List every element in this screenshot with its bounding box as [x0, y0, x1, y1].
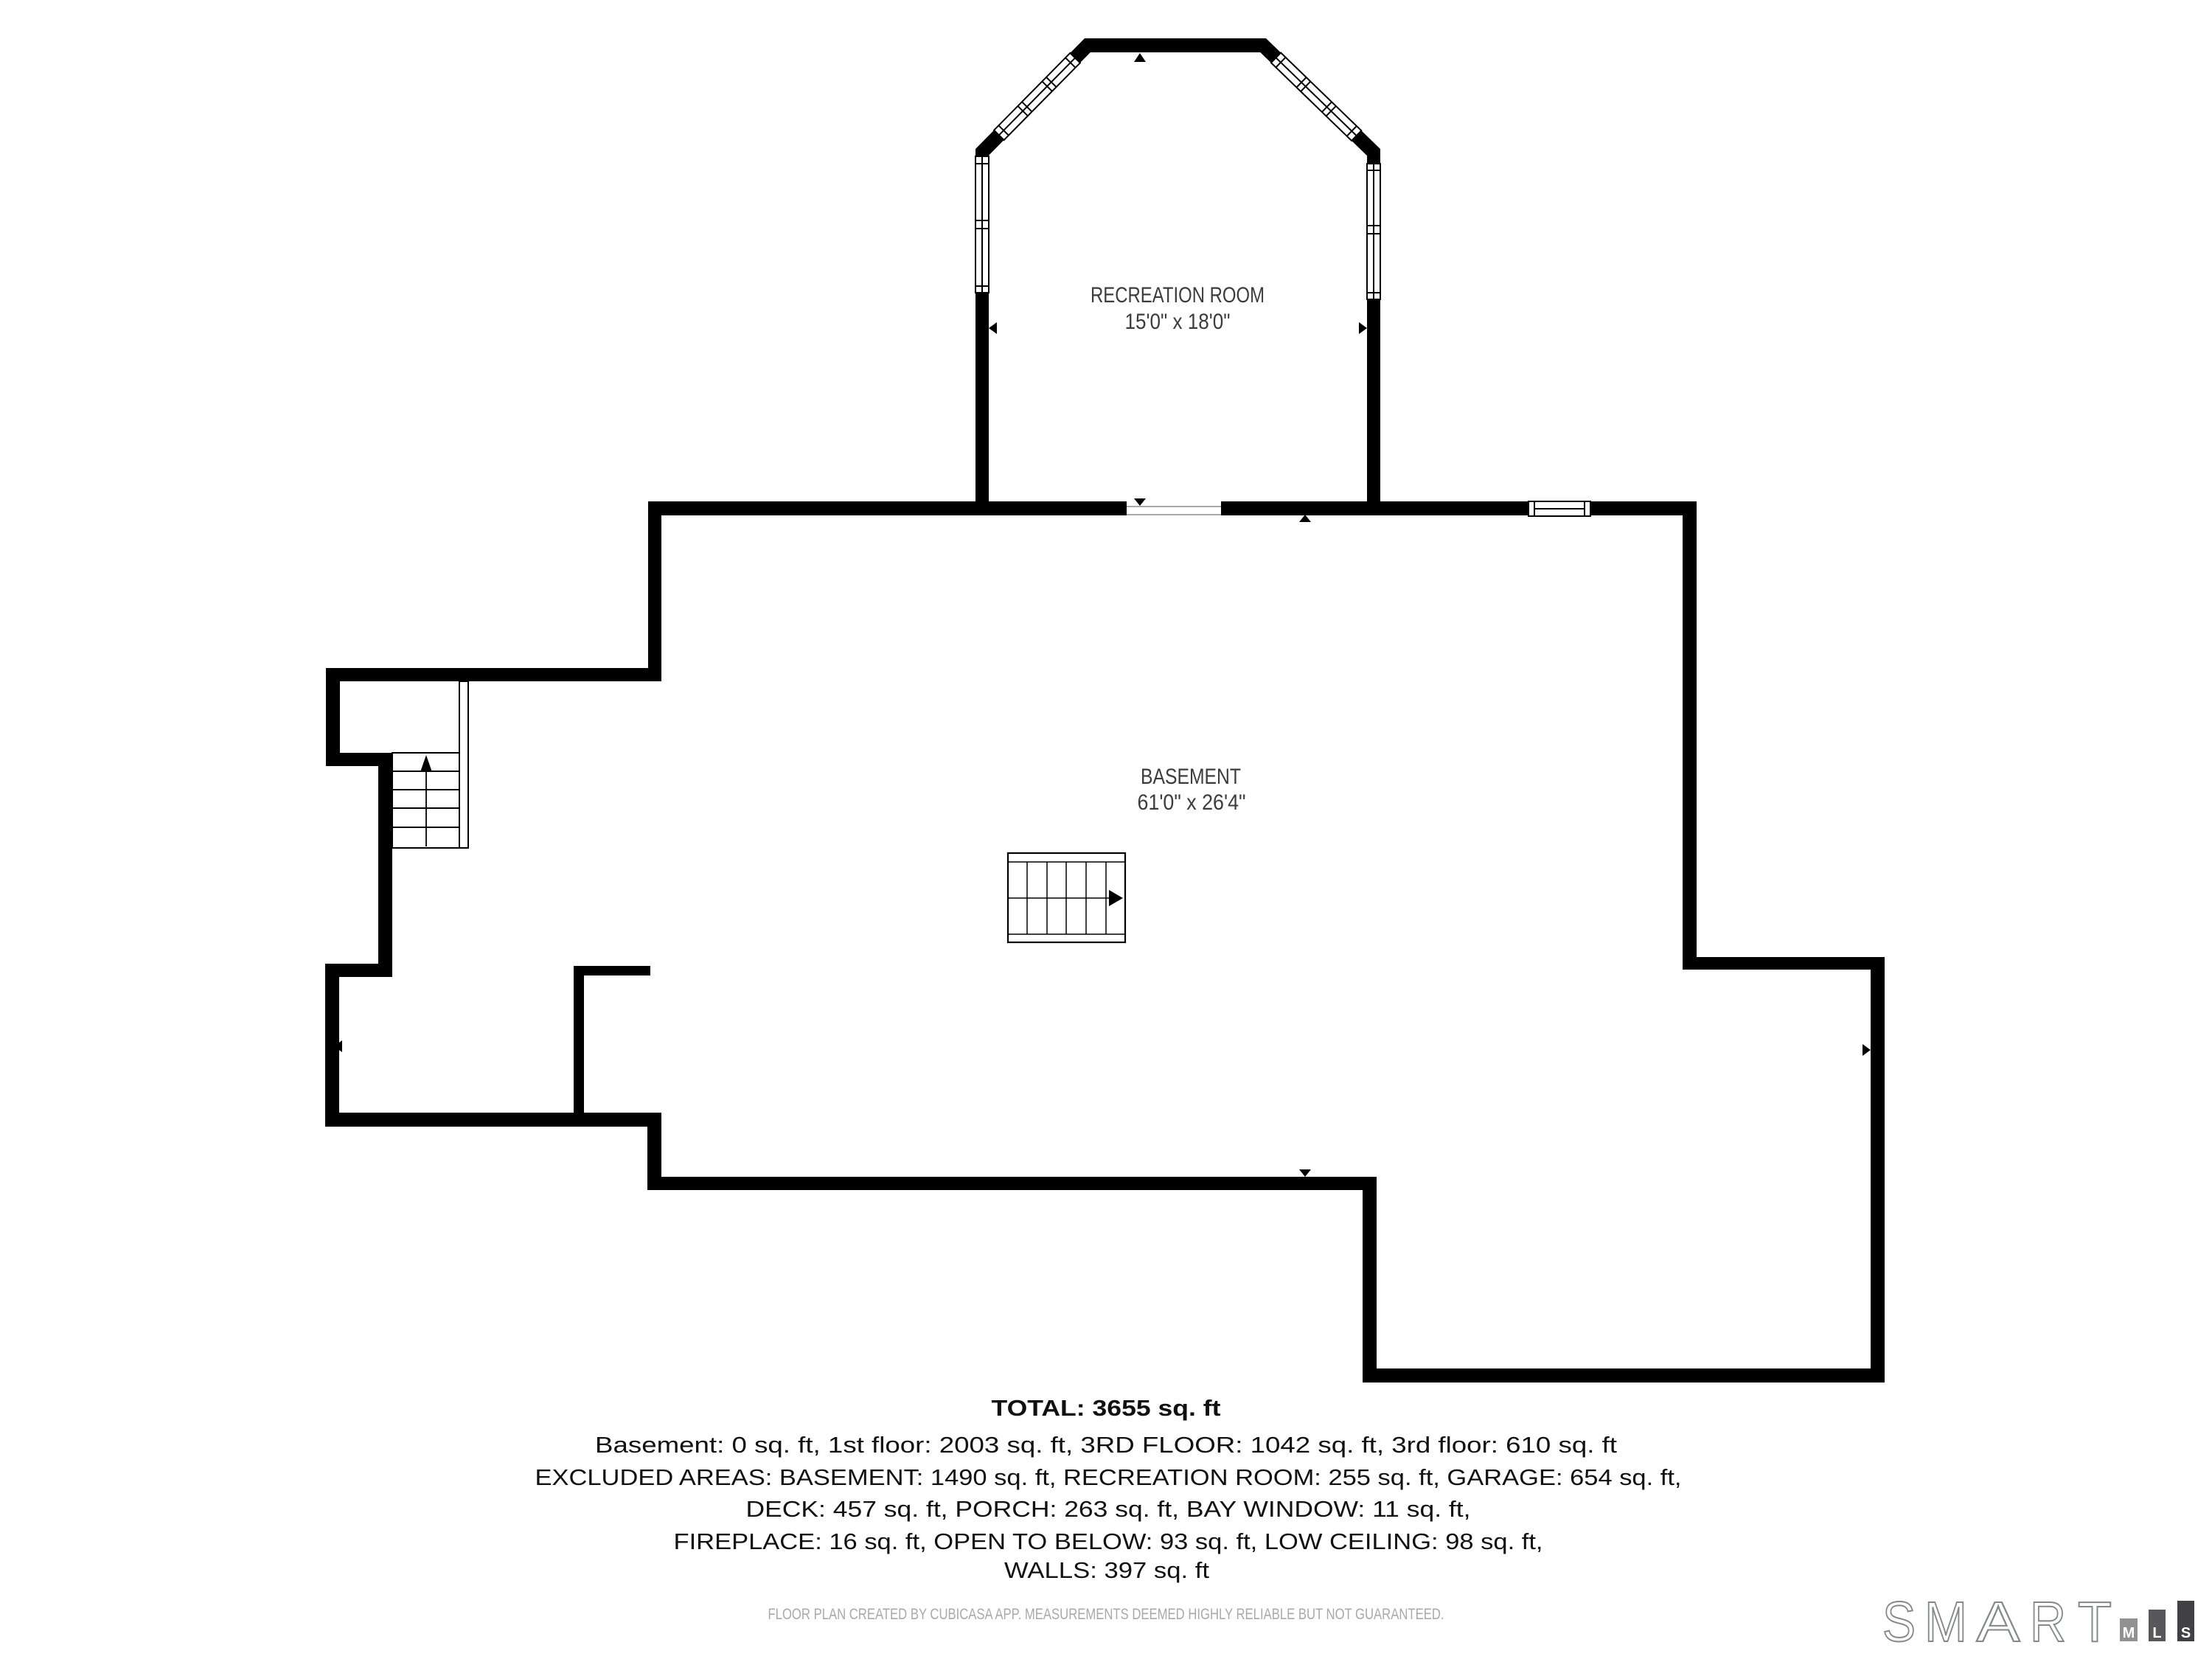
svg-text:FLOOR PLAN CREATED BY CUBICASA: FLOOR PLAN CREATED BY CUBICASA APP. MEAS… — [768, 1606, 1444, 1623]
svg-text:M: M — [1924, 1590, 1967, 1654]
svg-text:DECK: 457 sq. ft, PORCH: 263 s: DECK: 457 sq. ft, PORCH: 263 sq. ft, BAY… — [746, 1496, 1471, 1522]
svg-text:TOTAL: 3655 sq. ft: TOTAL: 3655 sq. ft — [992, 1395, 1221, 1421]
svg-text:S: S — [1882, 1590, 1916, 1654]
svg-text:T: T — [2078, 1590, 2112, 1654]
svg-text:15'0" x 18'0": 15'0" x 18'0" — [1125, 310, 1231, 334]
svg-text:RECREATION ROOM: RECREATION ROOM — [1091, 283, 1265, 307]
svg-text:L: L — [2152, 1625, 2161, 1641]
svg-text:EXCLUDED AREAS: BASEMENT: 1490: EXCLUDED AREAS: BASEMENT: 1490 sq. ft, R… — [535, 1464, 1682, 1490]
svg-text:WALLS: 397 sq. ft: WALLS: 397 sq. ft — [1004, 1557, 1209, 1583]
svg-text:61'0" x 26'4": 61'0" x 26'4" — [1138, 790, 1246, 815]
svg-text:FIREPLACE: 16 sq. ft, OPEN TO: FIREPLACE: 16 sq. ft, OPEN TO BELOW: 93 … — [674, 1528, 1543, 1554]
svg-text:A: A — [1977, 1590, 2021, 1654]
svg-text:Basement: 0 sq. ft, 1st floor:: Basement: 0 sq. ft, 1st floor: 2003 sq. … — [595, 1432, 1617, 1458]
svg-text:M: M — [2123, 1625, 2135, 1641]
svg-text:S: S — [2181, 1625, 2191, 1641]
svg-text:BASEMENT: BASEMENT — [1141, 765, 1241, 789]
svg-text:R: R — [2030, 1590, 2066, 1654]
